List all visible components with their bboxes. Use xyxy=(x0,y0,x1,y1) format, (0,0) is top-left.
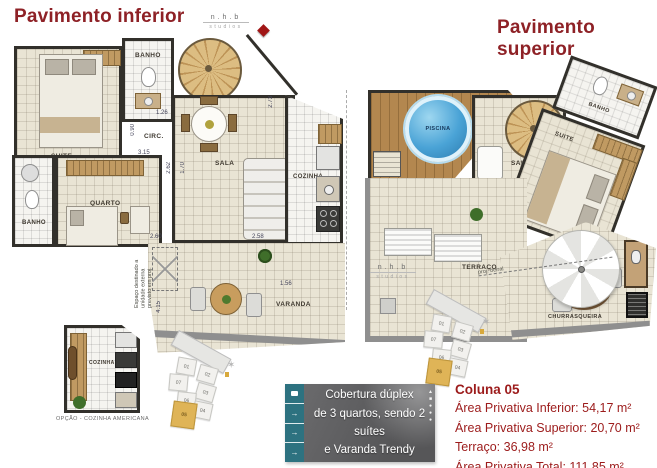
burner xyxy=(330,220,337,227)
desk xyxy=(130,206,150,234)
sink-icon xyxy=(324,185,334,195)
chair-icon xyxy=(200,143,218,152)
arrow-right-icon: → xyxy=(291,448,299,457)
armchair xyxy=(477,146,503,180)
lounge-chair xyxy=(384,228,432,256)
key-unit-highlighted: 05 xyxy=(425,357,452,386)
dimension: 1.56 xyxy=(280,281,292,287)
person-icon: ▲ xyxy=(428,389,433,396)
square-icon: ■ xyxy=(429,396,432,403)
room-label: SALA xyxy=(215,160,234,167)
room-label: CHURRASQUEIRA xyxy=(548,314,602,320)
microwave-icon xyxy=(115,372,137,388)
key-unit: 07 xyxy=(423,330,443,349)
bed-throw xyxy=(40,117,100,133)
bar-table xyxy=(68,346,77,380)
dimension: 2.62 xyxy=(166,162,172,174)
plant-icon xyxy=(258,249,272,263)
studio-logo-sub: studios xyxy=(203,22,249,30)
diagonal-wall xyxy=(246,34,298,96)
ac-note: Espaço destinado a unidade externa previ… xyxy=(134,248,150,308)
toilet-icon xyxy=(25,190,39,209)
fridge-icon xyxy=(115,332,137,348)
banner-line-1: Cobertura dúplex xyxy=(304,386,435,404)
quarto-bed xyxy=(66,206,118,246)
room-piscina: PISCINA xyxy=(405,96,471,162)
plant-icon xyxy=(222,295,231,304)
studio-logo: n.h.b studios xyxy=(370,264,416,280)
stove-icon xyxy=(316,206,340,232)
room-cozinha: COZINHA xyxy=(285,95,343,245)
lounge-chair xyxy=(434,234,482,262)
description-banner: → → → Cobertura dúplex de 3 quartos, sen… xyxy=(285,384,435,462)
area-inferior: Área Privativa Inferior: 54,17 m² xyxy=(455,399,655,419)
dimension: 4.15 xyxy=(156,301,162,313)
area-total: Área Privativa Total: 111,85 m² xyxy=(455,458,655,468)
property-dashed-line xyxy=(346,90,347,310)
option-kitchen-label: OPÇÃO - COZINHA AMERICANA xyxy=(56,416,149,422)
compass-icon: ✶ xyxy=(227,360,235,371)
burner xyxy=(330,210,337,217)
room-label: BANHO xyxy=(22,220,46,226)
vanity-icon xyxy=(616,83,644,106)
banner-text: Cobertura dúplex de 3 quartos, sendo 2 s… xyxy=(304,386,435,460)
varanda-table xyxy=(210,283,242,315)
option-kitchen-plan: COZINHA OPÇÃO - COZINHA AMERICANA xyxy=(64,325,140,413)
banner-line-3: e Varanda Trendy xyxy=(304,441,435,459)
bbq-counter xyxy=(624,240,648,288)
dimension: 2.58 xyxy=(252,234,264,240)
sink-icon xyxy=(144,97,153,106)
compass-gold-mark xyxy=(480,329,484,334)
umbrella-pole xyxy=(578,266,585,273)
quarto-wardrobe xyxy=(66,160,144,176)
option-kitchen-room: COZINHA xyxy=(64,325,140,413)
unit-info-title: Coluna 05 xyxy=(455,382,655,397)
toilet-icon xyxy=(141,67,156,87)
stair-center xyxy=(205,65,212,72)
key-unit-highlighted: 05 xyxy=(170,400,197,429)
studio-logo: n.h.b studios xyxy=(203,14,249,30)
studio-logo-sub: studios xyxy=(370,272,416,280)
sink-counter xyxy=(115,392,137,408)
studio-logo-name: n.h.b xyxy=(203,14,249,21)
brochure-page: Pavimento inferior Pavimento superior n.… xyxy=(0,0,657,468)
dimension: 2.60 xyxy=(150,234,162,240)
lower-floor-plan: SUITE 1.20 BANHO 2.50 1.26 S xyxy=(10,38,345,320)
dimension: 1.26 xyxy=(156,110,168,116)
suite-bed xyxy=(39,54,103,148)
fridge-icon xyxy=(316,146,340,170)
dimension: 2.73 xyxy=(268,96,274,108)
studio-logo-name: n.h.b xyxy=(370,264,416,271)
sofa xyxy=(243,158,289,240)
area-superior: Área Privativa Superior: 20,70 m² xyxy=(455,419,655,439)
compass-icon: ✶ xyxy=(482,317,490,328)
dimension: 0.90 xyxy=(130,124,136,136)
spiral-stair-lower xyxy=(178,38,242,102)
dimension: 1.70 xyxy=(180,162,186,174)
vanity-icon xyxy=(135,93,161,109)
plant-icon xyxy=(470,208,483,221)
sink-icon xyxy=(631,250,641,264)
arrow-right-icon: → xyxy=(291,428,299,437)
banner-line-2: de 3 quartos, sendo 2 suítes xyxy=(304,405,435,442)
sink-icon xyxy=(626,90,638,102)
burner xyxy=(320,220,327,227)
grill-icon xyxy=(626,292,648,318)
stove-icon xyxy=(115,352,137,368)
bed-throw xyxy=(526,151,571,224)
room-label: COZINHA xyxy=(89,360,115,366)
square-icon xyxy=(291,391,298,396)
sink-counter xyxy=(316,176,340,202)
north-marker-icon xyxy=(257,24,270,37)
deck-steps xyxy=(373,151,401,177)
room-label: VARANDA xyxy=(276,301,311,308)
bed-pillow xyxy=(70,210,84,226)
plant-icon xyxy=(73,396,86,409)
title-lower-floor: Pavimento inferior xyxy=(14,6,184,28)
chair-icon xyxy=(246,293,262,317)
room-quarto: QUARTO xyxy=(55,155,162,247)
room-label: BANHO xyxy=(135,52,161,59)
room-label: CIRC. xyxy=(144,133,164,140)
compass-gold-mark xyxy=(225,372,229,377)
dot-icon: ● xyxy=(429,417,432,424)
chair-icon xyxy=(228,114,237,132)
bed-pillow xyxy=(45,59,69,75)
umbrella-icon xyxy=(542,230,620,308)
dot-icon: ● xyxy=(429,403,432,410)
dining-table xyxy=(191,106,227,142)
strip-cell: → xyxy=(285,404,304,424)
burner xyxy=(320,210,327,217)
upper-floor-plan: PISCINA SALETA BANHO SUITE xyxy=(360,50,657,350)
room-sala: SALA xyxy=(172,95,295,243)
area-terraco: Terraço: 36,98 m² xyxy=(455,438,655,458)
unit-info: Coluna 05 Área Privativa Inferior: 54,17… xyxy=(455,382,655,468)
banner-body: Cobertura dúplex de 3 quartos, sendo 2 s… xyxy=(304,384,435,462)
strip-cell: → xyxy=(285,424,304,444)
bed-pillow xyxy=(586,174,610,204)
arrow-right-icon: → xyxy=(291,409,299,418)
banner-mini-icons: ▲ ■ ● ● ● xyxy=(428,389,433,424)
ac-unit-space xyxy=(152,247,178,291)
chair-icon xyxy=(190,287,206,311)
key-plan-upper: 01 02 07 03 06 04 05 ✶ xyxy=(420,283,500,388)
banner-side-strip: → → → xyxy=(285,384,304,462)
kitchen-cabinet xyxy=(318,124,342,144)
key-unit: 07 xyxy=(168,373,188,392)
side-table xyxy=(380,298,396,314)
bed-pillow xyxy=(72,59,96,75)
table-centerpiece xyxy=(205,120,214,129)
toilet-icon xyxy=(591,74,611,97)
room-banho-bottom: BANHO xyxy=(12,155,55,247)
room-label: SUITE xyxy=(554,131,575,143)
room-label: PISCINA xyxy=(425,126,450,132)
chair-icon xyxy=(120,212,129,224)
dot-icon: ● xyxy=(429,410,432,417)
key-plan-lower: 01 02 07 03 06 04 05 ✶ xyxy=(165,322,245,434)
room-label: BANHO xyxy=(587,101,610,114)
wing-parapet xyxy=(500,321,650,338)
strip-cell xyxy=(285,384,304,404)
shower-icon xyxy=(21,164,39,182)
chair-icon xyxy=(181,114,190,132)
chair-icon xyxy=(200,96,218,105)
strip-cell: → xyxy=(285,443,304,462)
